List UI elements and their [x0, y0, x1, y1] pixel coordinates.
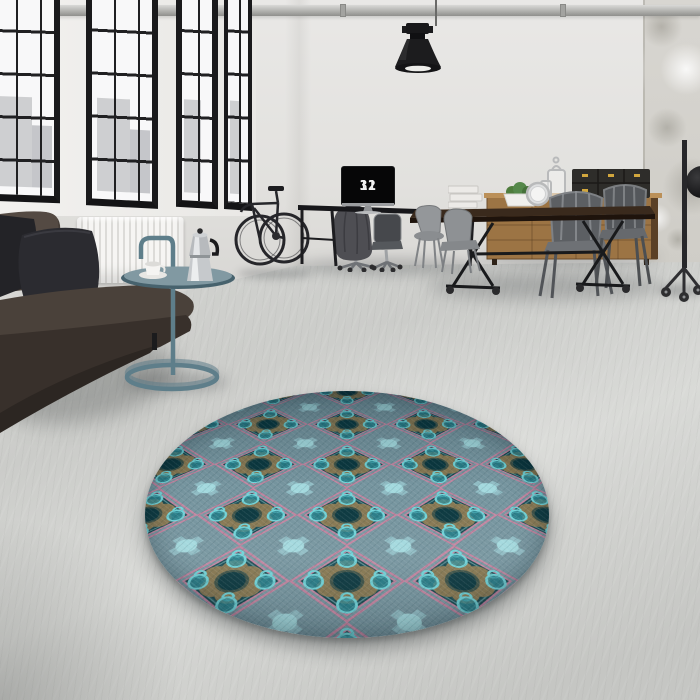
metal-chair-back-right [596, 185, 650, 288]
monitor-chin [342, 203, 394, 206]
pendant-lamp [392, 22, 444, 80]
rug-shading [145, 391, 549, 638]
loft-room-photo: 11 32 [0, 0, 700, 700]
factory-window-3 [176, 0, 218, 209]
rolling-stand [658, 140, 700, 302]
dining-set [398, 178, 668, 308]
table-frame [141, 238, 173, 375]
monitor-base [355, 211, 381, 214]
window-mullions [228, 0, 248, 204]
side-table [115, 225, 243, 405]
window-mullions [0, 0, 54, 196]
factory-window-1 [0, 0, 60, 203]
round-rug [145, 391, 549, 638]
monitor-flip-clock: 11 32 [341, 166, 395, 206]
window-mullions [92, 0, 152, 202]
factory-window-2 [86, 0, 158, 209]
shell-chair-left [414, 206, 444, 268]
clock-minutes: 32 [360, 180, 377, 193]
pipe-clamp [340, 4, 346, 17]
window-mullions [182, 0, 212, 202]
pipe-clamp [560, 4, 566, 17]
